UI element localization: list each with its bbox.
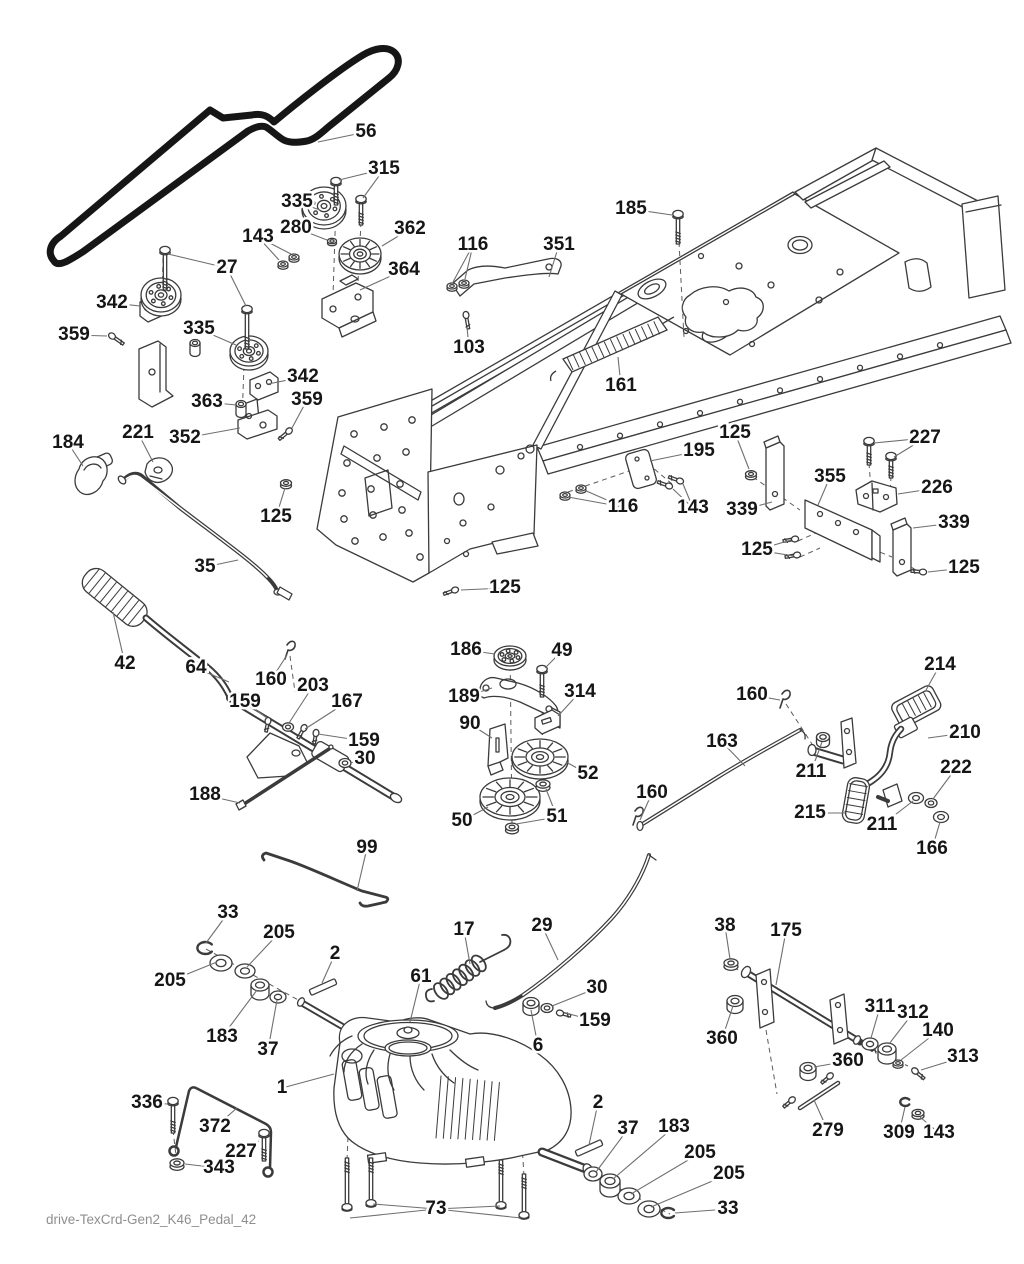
part-label-175: 175 xyxy=(770,920,802,985)
diagram-page: 5631533528036214336427342335359116103342… xyxy=(0,0,1024,1264)
part-label-342: 342 xyxy=(96,292,140,313)
washer xyxy=(339,759,351,768)
bushing xyxy=(800,1063,816,1081)
part-label-279: 279 xyxy=(812,1100,844,1141)
part-label-30: 30 xyxy=(552,977,608,1006)
svg-text:211: 211 xyxy=(867,814,898,835)
svg-text:56: 56 xyxy=(355,121,376,142)
part-label-49: 49 xyxy=(545,640,573,668)
part-label-30: 30 xyxy=(350,748,376,769)
part-label-355: 355 xyxy=(814,466,846,505)
diagram-code: drive-TexCrd-Gen2_K46_Pedal_42 xyxy=(46,1212,256,1227)
part-label-6: 6 xyxy=(531,1010,543,1056)
part-label-359: 359 xyxy=(58,324,107,345)
bolt xyxy=(356,195,366,225)
svg-text:49: 49 xyxy=(551,640,572,661)
svg-text:359: 359 xyxy=(291,389,323,410)
bushing xyxy=(190,340,200,357)
svg-text:90: 90 xyxy=(459,713,480,734)
part-label-90: 90 xyxy=(459,713,492,738)
rod-29 xyxy=(486,855,656,1008)
part-label-205: 205 xyxy=(247,922,295,967)
part-label-35: 35 xyxy=(194,556,238,577)
svg-text:313: 313 xyxy=(947,1046,979,1067)
svg-text:167: 167 xyxy=(331,691,363,712)
svg-text:205: 205 xyxy=(713,1163,745,1184)
screw xyxy=(911,568,927,575)
part-label-360: 360 xyxy=(814,1050,864,1071)
svg-text:175: 175 xyxy=(770,920,802,941)
plate-355 xyxy=(805,500,880,562)
svg-text:37: 37 xyxy=(257,1039,278,1060)
part-label-185: 185 xyxy=(615,198,672,219)
svg-text:17: 17 xyxy=(453,919,474,940)
part-label-125: 125 xyxy=(260,488,292,527)
svg-text:343: 343 xyxy=(203,1157,235,1178)
svg-text:315: 315 xyxy=(368,158,400,179)
svg-text:143: 143 xyxy=(242,226,274,247)
svg-text:61: 61 xyxy=(410,966,432,987)
svg-text:185: 185 xyxy=(615,198,647,219)
bracket-342-b xyxy=(250,372,278,400)
svg-text:52: 52 xyxy=(577,763,598,784)
svg-text:140: 140 xyxy=(922,1020,954,1041)
part-label-363: 363 xyxy=(191,391,236,412)
svg-text:125: 125 xyxy=(489,577,521,598)
svg-text:51: 51 xyxy=(546,806,568,827)
svg-text:103: 103 xyxy=(453,337,485,358)
part-label-159: 159 xyxy=(566,1010,611,1031)
svg-text:359: 359 xyxy=(58,324,90,345)
svg-text:336: 336 xyxy=(131,1092,163,1113)
svg-text:38: 38 xyxy=(714,915,735,936)
svg-text:73: 73 xyxy=(425,1198,446,1219)
part-label-161: 161 xyxy=(605,357,637,396)
svg-text:214: 214 xyxy=(924,654,956,675)
part-label-311: 311 xyxy=(865,996,896,1038)
svg-text:160: 160 xyxy=(636,782,668,803)
washer xyxy=(909,793,924,804)
nut xyxy=(328,238,337,245)
svg-text:160: 160 xyxy=(255,669,287,690)
svg-text:116: 116 xyxy=(458,234,489,255)
washer xyxy=(584,1167,602,1181)
square-key xyxy=(575,1140,603,1157)
bushing xyxy=(236,401,246,418)
part-label-222: 222 xyxy=(933,757,972,799)
carriage-bolt xyxy=(366,1158,376,1207)
part-label-352: 352 xyxy=(169,427,240,448)
svg-text:29: 29 xyxy=(531,915,552,936)
nut xyxy=(278,261,288,269)
part-label-33: 33 xyxy=(675,1198,739,1219)
part-label-372: 372 xyxy=(199,1108,237,1137)
svg-text:211: 211 xyxy=(796,761,827,782)
shaft-175 xyxy=(740,965,876,1053)
bolt xyxy=(864,437,874,465)
nut xyxy=(170,1159,184,1171)
part-label-339: 339 xyxy=(913,512,970,533)
part-label-226: 226 xyxy=(898,477,953,498)
svg-text:159: 159 xyxy=(229,691,261,712)
part-label-195: 195 xyxy=(650,440,715,461)
idler-pulley-335 xyxy=(141,278,181,316)
part-label-188: 188 xyxy=(189,784,240,805)
carriage-bolt xyxy=(496,1160,506,1209)
svg-text:339: 339 xyxy=(726,499,758,520)
cap-184 xyxy=(75,452,114,495)
part-label-159: 159 xyxy=(229,691,267,718)
bushing xyxy=(817,733,830,748)
svg-text:33: 33 xyxy=(217,902,238,923)
svg-text:6: 6 xyxy=(533,1035,544,1056)
svg-text:27: 27 xyxy=(216,257,237,278)
washer xyxy=(541,1004,553,1013)
svg-text:99: 99 xyxy=(356,837,377,858)
screw xyxy=(820,1071,835,1085)
svg-text:42: 42 xyxy=(114,653,135,674)
part-label-143: 143 xyxy=(920,1117,955,1143)
pedal-shaft-64 xyxy=(146,618,403,804)
part-label-359: 359 xyxy=(291,389,323,428)
svg-text:203: 203 xyxy=(297,675,329,696)
washer xyxy=(934,812,949,823)
svg-text:30: 30 xyxy=(586,977,607,998)
transaxle-1 xyxy=(296,997,595,1178)
svg-text:311: 311 xyxy=(865,996,896,1017)
washer xyxy=(270,991,286,1003)
pulley-50 xyxy=(480,778,540,820)
part-label-163: 163 xyxy=(706,731,745,766)
part-label-103: 103 xyxy=(453,327,485,358)
part-label-2: 2 xyxy=(322,943,340,983)
svg-text:360: 360 xyxy=(832,1050,864,1071)
svg-text:205: 205 xyxy=(154,970,186,991)
bracket-339-b xyxy=(891,518,911,576)
retainer-clip xyxy=(661,1208,674,1218)
bushing xyxy=(727,996,743,1014)
svg-text:355: 355 xyxy=(814,466,846,487)
svg-text:205: 205 xyxy=(684,1142,716,1163)
screw xyxy=(657,479,674,490)
bracket-364 xyxy=(322,275,376,337)
part-label-38: 38 xyxy=(714,915,735,959)
part-label-167: 167 xyxy=(305,691,363,729)
svg-text:33: 33 xyxy=(717,1198,738,1219)
part-label-205: 205 xyxy=(631,1142,716,1194)
svg-text:215: 215 xyxy=(794,802,826,823)
svg-text:166: 166 xyxy=(916,838,948,859)
screw xyxy=(782,1095,797,1109)
svg-text:161: 161 xyxy=(605,375,637,396)
svg-text:64: 64 xyxy=(185,657,207,678)
part-label-227: 227 xyxy=(874,427,941,457)
washer xyxy=(925,799,937,808)
part-label-29: 29 xyxy=(531,915,558,960)
nut xyxy=(746,471,757,480)
nut xyxy=(459,280,469,288)
svg-text:189: 189 xyxy=(448,686,480,707)
washer xyxy=(283,723,294,731)
part-label-214: 214 xyxy=(924,654,956,690)
part-label-99: 99 xyxy=(356,837,377,891)
svg-text:342: 342 xyxy=(287,366,319,387)
bracket-339-a xyxy=(764,436,784,510)
svg-text:183: 183 xyxy=(658,1116,690,1137)
svg-text:159: 159 xyxy=(579,1010,611,1031)
nut xyxy=(576,485,586,493)
svg-text:362: 362 xyxy=(394,218,426,239)
retainer-clip xyxy=(197,942,211,954)
part-label-184: 184 xyxy=(52,432,84,466)
nut xyxy=(912,1109,924,1119)
bolt xyxy=(673,210,683,244)
cotter-pin xyxy=(780,690,790,708)
svg-text:195: 195 xyxy=(683,440,715,461)
parts-diagram-canvas: 5631533528036214336427342335359116103342… xyxy=(0,0,1024,1264)
part-label-221: 221 xyxy=(122,422,154,462)
svg-text:125: 125 xyxy=(260,506,292,527)
svg-text:116: 116 xyxy=(608,496,639,517)
svg-text:227: 227 xyxy=(909,427,941,448)
part-label-336: 336 xyxy=(131,1092,168,1113)
clip-221 xyxy=(145,458,172,483)
part-label-50: 50 xyxy=(451,807,488,831)
part-label-37: 37 xyxy=(257,1000,278,1060)
svg-text:143: 143 xyxy=(677,497,709,518)
screw xyxy=(277,426,293,441)
part-label-166: 166 xyxy=(916,822,948,859)
svg-text:335: 335 xyxy=(183,318,215,339)
svg-text:188: 188 xyxy=(189,784,221,805)
svg-text:364: 364 xyxy=(388,259,420,280)
svg-text:184: 184 xyxy=(52,432,84,453)
nut xyxy=(536,780,550,792)
screw xyxy=(463,311,472,329)
svg-text:279: 279 xyxy=(812,1120,844,1141)
carriage-bolt xyxy=(519,1174,529,1219)
svg-text:125: 125 xyxy=(948,557,980,578)
part-label-203: 203 xyxy=(289,675,329,723)
svg-text:372: 372 xyxy=(199,1116,231,1137)
washer xyxy=(862,1038,878,1050)
part-label-205: 205 xyxy=(154,962,217,991)
part-label-2: 2 xyxy=(589,1092,603,1145)
part-label-61: 61 xyxy=(410,966,432,1022)
washer xyxy=(235,964,255,978)
bracket-195 xyxy=(625,448,658,489)
part-label-309: 309 xyxy=(883,1107,915,1143)
screw xyxy=(443,586,460,597)
part-label-343: 343 xyxy=(185,1157,235,1178)
svg-text:360: 360 xyxy=(706,1028,738,1049)
svg-text:125: 125 xyxy=(741,539,773,560)
brake-rod-35 xyxy=(117,474,292,600)
part-label-160: 160 xyxy=(736,684,780,705)
spring-17 xyxy=(426,935,511,1002)
pulley-186 xyxy=(494,646,526,670)
svg-text:1: 1 xyxy=(277,1077,288,1098)
svg-text:2: 2 xyxy=(593,1092,604,1113)
nut xyxy=(560,492,570,500)
bushing xyxy=(600,1174,620,1197)
idler-pulley-362 xyxy=(339,238,381,274)
nut xyxy=(289,254,299,262)
svg-text:186: 186 xyxy=(450,639,482,660)
svg-text:210: 210 xyxy=(949,722,981,743)
part-label-116: 116 xyxy=(568,490,638,517)
part-label-140: 140 xyxy=(901,1020,954,1060)
svg-text:35: 35 xyxy=(194,556,216,577)
bracket-314 xyxy=(535,708,560,734)
part-label-125: 125 xyxy=(928,557,980,578)
retainer-clip xyxy=(900,1098,909,1106)
svg-text:342: 342 xyxy=(96,292,128,313)
part-label-315: 315 xyxy=(339,158,400,198)
svg-text:205: 205 xyxy=(263,922,295,943)
carriage-bolt xyxy=(342,1158,352,1211)
link-279 xyxy=(800,1083,838,1108)
svg-text:125: 125 xyxy=(719,422,751,443)
svg-text:280: 280 xyxy=(280,217,312,238)
idler-pulley-52 xyxy=(512,739,568,779)
idler-arm-189 xyxy=(479,678,558,717)
part-label-125: 125 xyxy=(461,577,521,598)
part-label-314: 314 xyxy=(558,681,596,716)
svg-text:37: 37 xyxy=(617,1118,638,1139)
svg-text:222: 222 xyxy=(940,757,972,778)
svg-text:183: 183 xyxy=(206,1026,238,1047)
svg-text:30: 30 xyxy=(354,748,375,769)
part-label-362: 362 xyxy=(382,218,426,246)
svg-text:309: 309 xyxy=(883,1122,915,1143)
svg-text:160: 160 xyxy=(736,684,768,705)
svg-text:351: 351 xyxy=(543,234,575,255)
nut xyxy=(447,283,457,291)
svg-text:163: 163 xyxy=(706,731,738,752)
frame-bumper xyxy=(905,259,931,292)
part-label-143: 143 xyxy=(673,484,709,518)
part-label-52: 52 xyxy=(566,762,599,784)
svg-text:221: 221 xyxy=(122,422,154,443)
svg-text:50: 50 xyxy=(451,810,472,831)
bushing xyxy=(878,1043,896,1064)
part-label-1: 1 xyxy=(277,1074,334,1098)
bolt xyxy=(259,1129,269,1161)
bracket-359-holder xyxy=(139,341,173,407)
svg-text:352: 352 xyxy=(169,427,201,448)
svg-text:363: 363 xyxy=(191,391,223,412)
part-label-33: 33 xyxy=(206,902,239,943)
part-label-215: 215 xyxy=(794,802,845,823)
nut xyxy=(281,480,292,489)
part-label-183: 183 xyxy=(206,990,257,1047)
drive-belt-56 xyxy=(50,48,398,263)
screw xyxy=(107,332,125,347)
bracket-90 xyxy=(488,724,508,775)
part-label-125: 125 xyxy=(719,422,751,469)
washer xyxy=(638,1201,660,1217)
nut xyxy=(506,823,519,834)
part-label-210: 210 xyxy=(928,722,981,743)
rod-99 xyxy=(262,853,387,906)
chassis-frame xyxy=(317,148,1011,582)
part-label-160: 160 xyxy=(255,655,287,690)
svg-text:335: 335 xyxy=(281,191,313,212)
svg-text:2: 2 xyxy=(330,943,341,964)
part-label-339: 339 xyxy=(726,499,772,520)
svg-text:339: 339 xyxy=(938,512,970,533)
part-label-186: 186 xyxy=(450,639,495,660)
bolt xyxy=(168,1097,178,1133)
svg-text:226: 226 xyxy=(921,477,953,498)
part-label-313: 313 xyxy=(921,1046,979,1070)
bushing xyxy=(251,979,269,1000)
svg-text:143: 143 xyxy=(923,1122,955,1143)
svg-text:314: 314 xyxy=(564,681,596,702)
nut xyxy=(724,959,738,971)
